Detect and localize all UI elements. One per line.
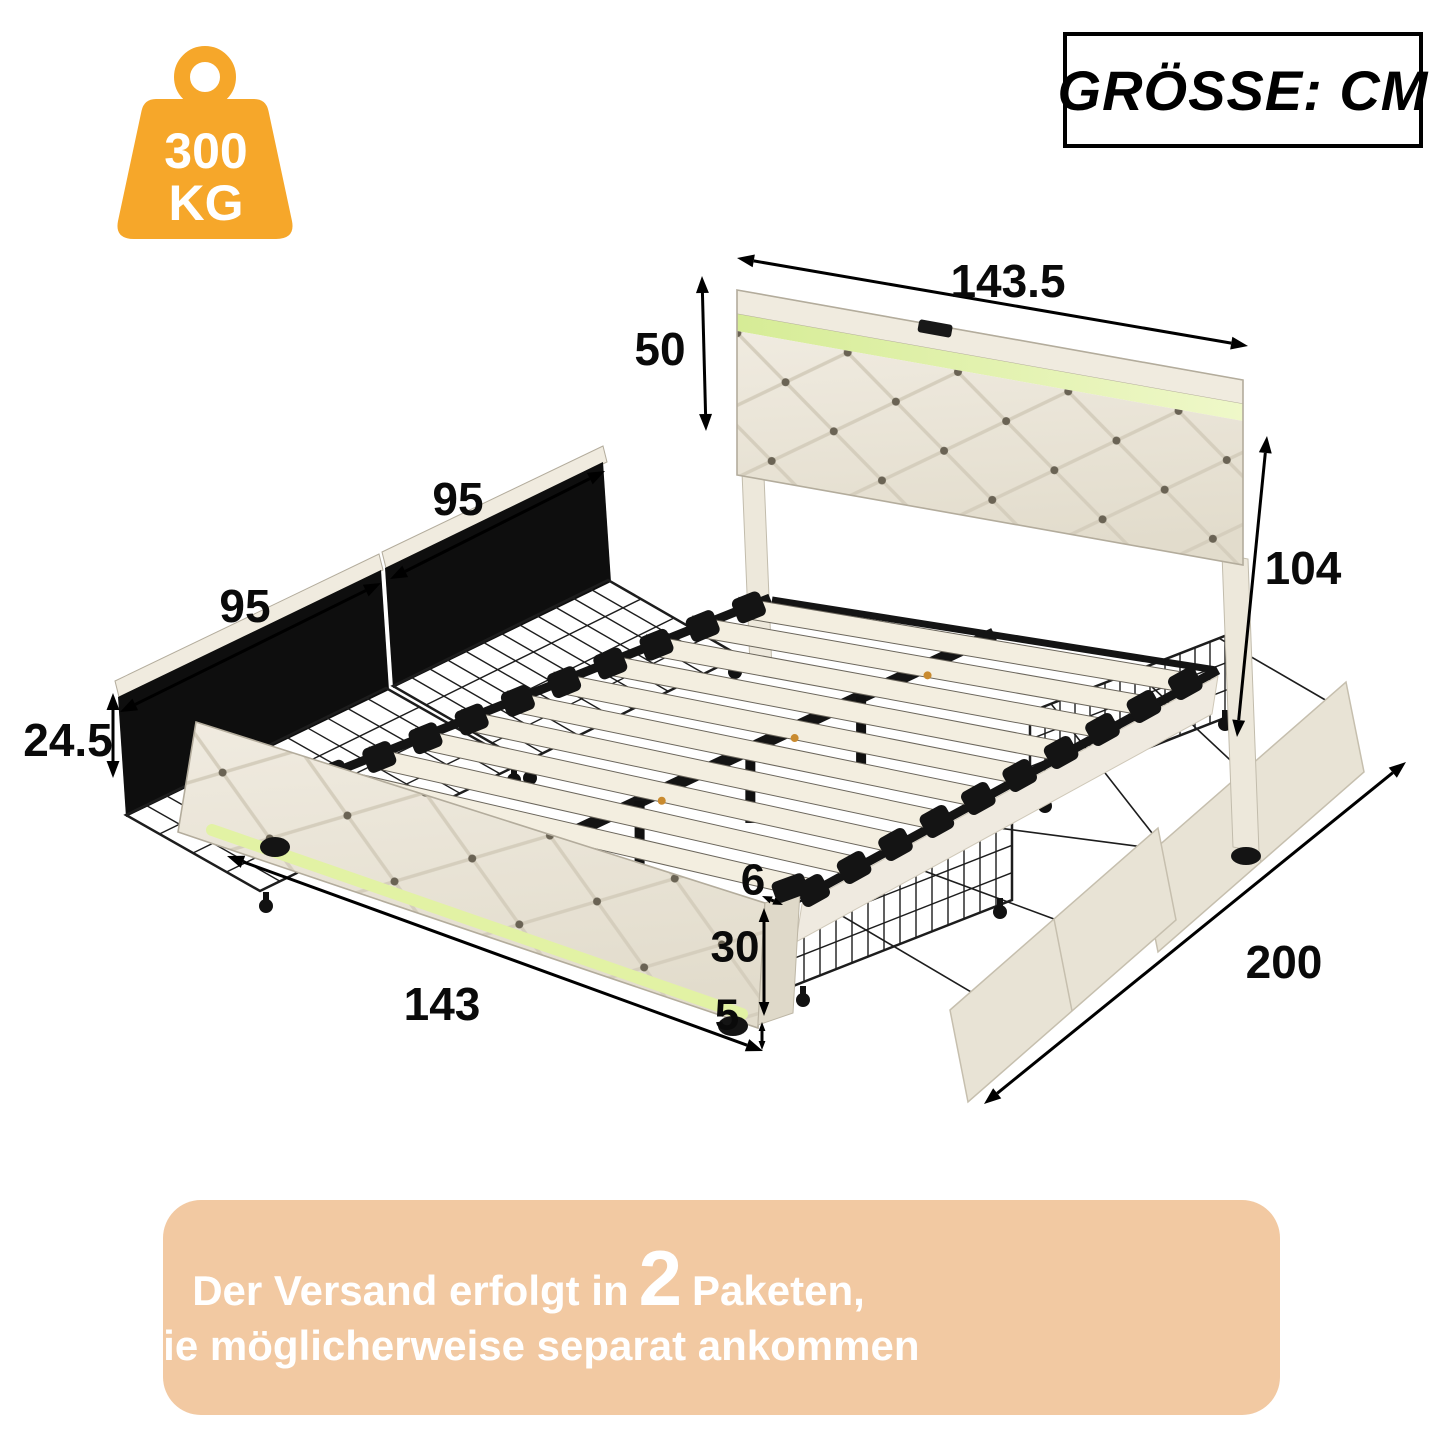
shipping-banner: Der Versand erfolgt in 2 Paketen, die mö…: [163, 1200, 1280, 1415]
dimension-24.5: 24.5: [23, 693, 119, 778]
dimension-label: 143: [404, 978, 481, 1030]
shipping-line1-suffix: Paketen,: [692, 1269, 865, 1313]
dimension-label: 95: [219, 580, 270, 632]
dimension-label: 95: [432, 473, 483, 525]
dimension-label: 104: [1265, 542, 1342, 594]
dimension-label: 50: [634, 323, 685, 375]
shipping-line2-text: die möglicherweise separat ankommen: [138, 1324, 920, 1368]
dimension-label: 5: [715, 991, 739, 1040]
dimension-label: 24.5: [23, 714, 113, 766]
product-dimension-infographic: 300 KG GRÖSSE: CM: [0, 0, 1445, 1445]
dimension-label: 143.5: [950, 255, 1065, 307]
dimension-50: 50: [634, 276, 712, 431]
dimension-label: 6: [741, 856, 765, 905]
dimension-label: 200: [1246, 936, 1323, 988]
dimension-label: 30: [711, 923, 760, 972]
shipping-line1-prefix: Der Versand erfolgt in: [192, 1269, 628, 1313]
shipping-package-count: 2: [639, 1247, 682, 1309]
shipping-line-1: Der Versand erfolgt in 2 Paketen,: [192, 1247, 865, 1313]
shipping-banner-text: Der Versand erfolgt in 2 Paketen, die mö…: [171, 1200, 886, 1415]
shipping-line-2: die möglicherweise separat ankommen: [138, 1324, 920, 1368]
